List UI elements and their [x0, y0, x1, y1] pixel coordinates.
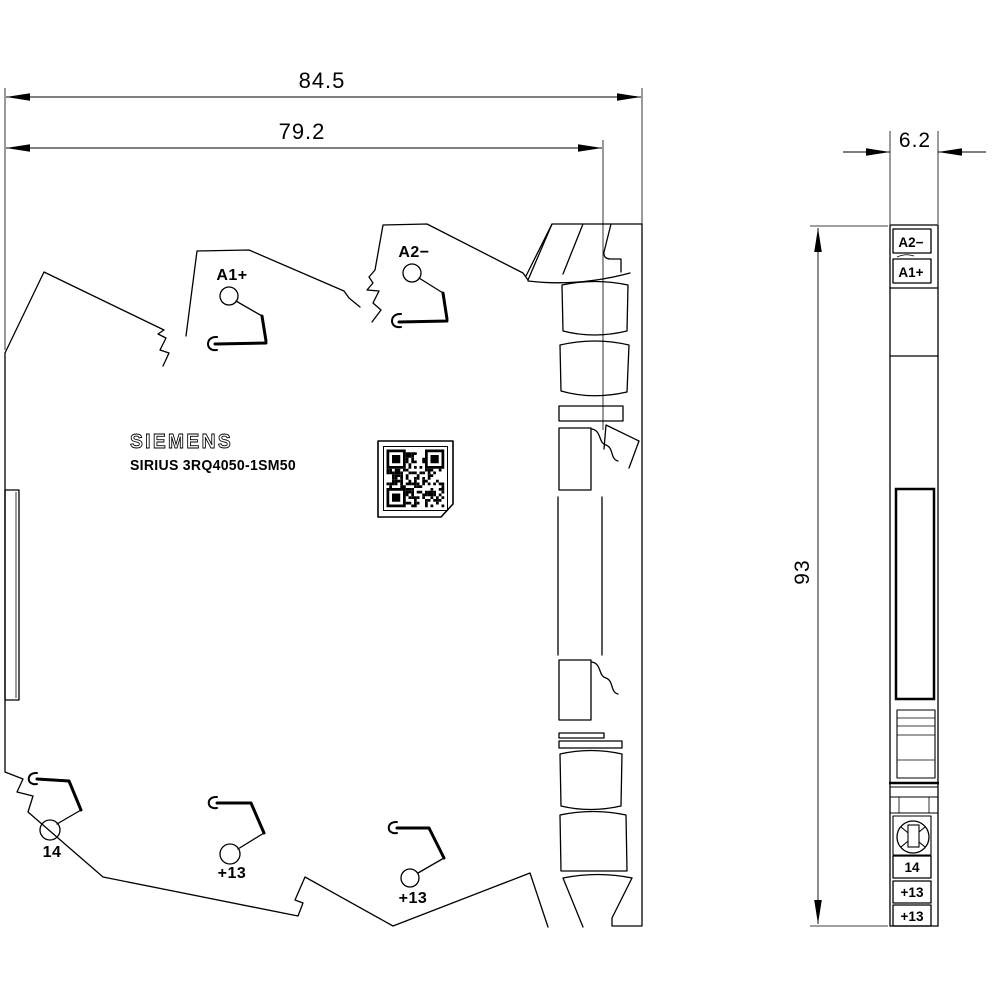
- dimensional-drawing: 84.5 79.2 6.2 93: [0, 0, 1000, 1000]
- dimension-overall-width: 84.5: [5, 68, 642, 350]
- terminal-13-right-label: +13: [399, 890, 428, 907]
- front-terminal-14-label: 14: [904, 860, 920, 875]
- din-foot-arc: [563, 875, 632, 928]
- terminal-tower-a1: [186, 250, 360, 336]
- terminal-13-mid: +13: [209, 797, 264, 882]
- front-terminal-a2-label: A2−: [898, 235, 923, 250]
- product-code-text: SIRIUS 3RQ4050-1SM50: [130, 457, 296, 474]
- terminal-13-right: +13: [389, 822, 444, 907]
- side-label-slot: [5, 490, 19, 700]
- front-housing-window: [896, 489, 934, 699]
- terminal-14: 14: [29, 773, 81, 861]
- front-terminal-13a-label: +13: [901, 885, 924, 900]
- dimension-depth-label: 6.2: [899, 129, 931, 152]
- terminal-a1-test-point: [220, 287, 238, 305]
- front-screw-terminal: [893, 816, 931, 855]
- dimension-height-label: 93: [791, 559, 814, 584]
- terminal-14-test-point: [40, 820, 60, 840]
- terminal-13-mid-test-point: [220, 844, 240, 864]
- terminal-a2: A2−: [392, 244, 447, 327]
- terminal-13-right-test-point: [401, 869, 419, 887]
- dimension-overall-width-label: 84.5: [299, 68, 346, 93]
- terminal-tower-a2: [367, 224, 528, 322]
- front-cage-clamp: [897, 710, 935, 778]
- terminal-14-label: 14: [43, 844, 62, 861]
- dimension-depth: 6.2: [843, 129, 986, 224]
- front-terminal-a1-label: A1+: [898, 265, 923, 280]
- housing-roof-left: [5, 272, 169, 366]
- terminal-a2-test-point: [403, 264, 421, 282]
- terminal-a1-label: A1+: [216, 267, 247, 284]
- housing-right-edge: [528, 224, 642, 926]
- qr-code-icon: [378, 441, 453, 517]
- brand-logo-text: SIEMENS: [130, 430, 233, 453]
- terminal-13-mid-label: +13: [218, 865, 247, 882]
- terminal-a2-label: A2−: [398, 244, 429, 261]
- housing-bottom-edge: [5, 353, 548, 927]
- technical-drawing-page: 84.5 79.2 6.2 93: [0, 0, 1000, 1000]
- side-view: A1+ A2− 14 +13: [5, 224, 642, 927]
- din-rail-mount: [526, 224, 639, 871]
- terminal-a1: A1+: [208, 267, 266, 350]
- dimension-housing-width-label: 79.2: [279, 119, 326, 144]
- front-view: A2− A1+ 14 +13 +13: [889, 225, 939, 926]
- dimension-height: 93: [791, 226, 888, 926]
- front-terminal-13b-label: +13: [901, 909, 924, 924]
